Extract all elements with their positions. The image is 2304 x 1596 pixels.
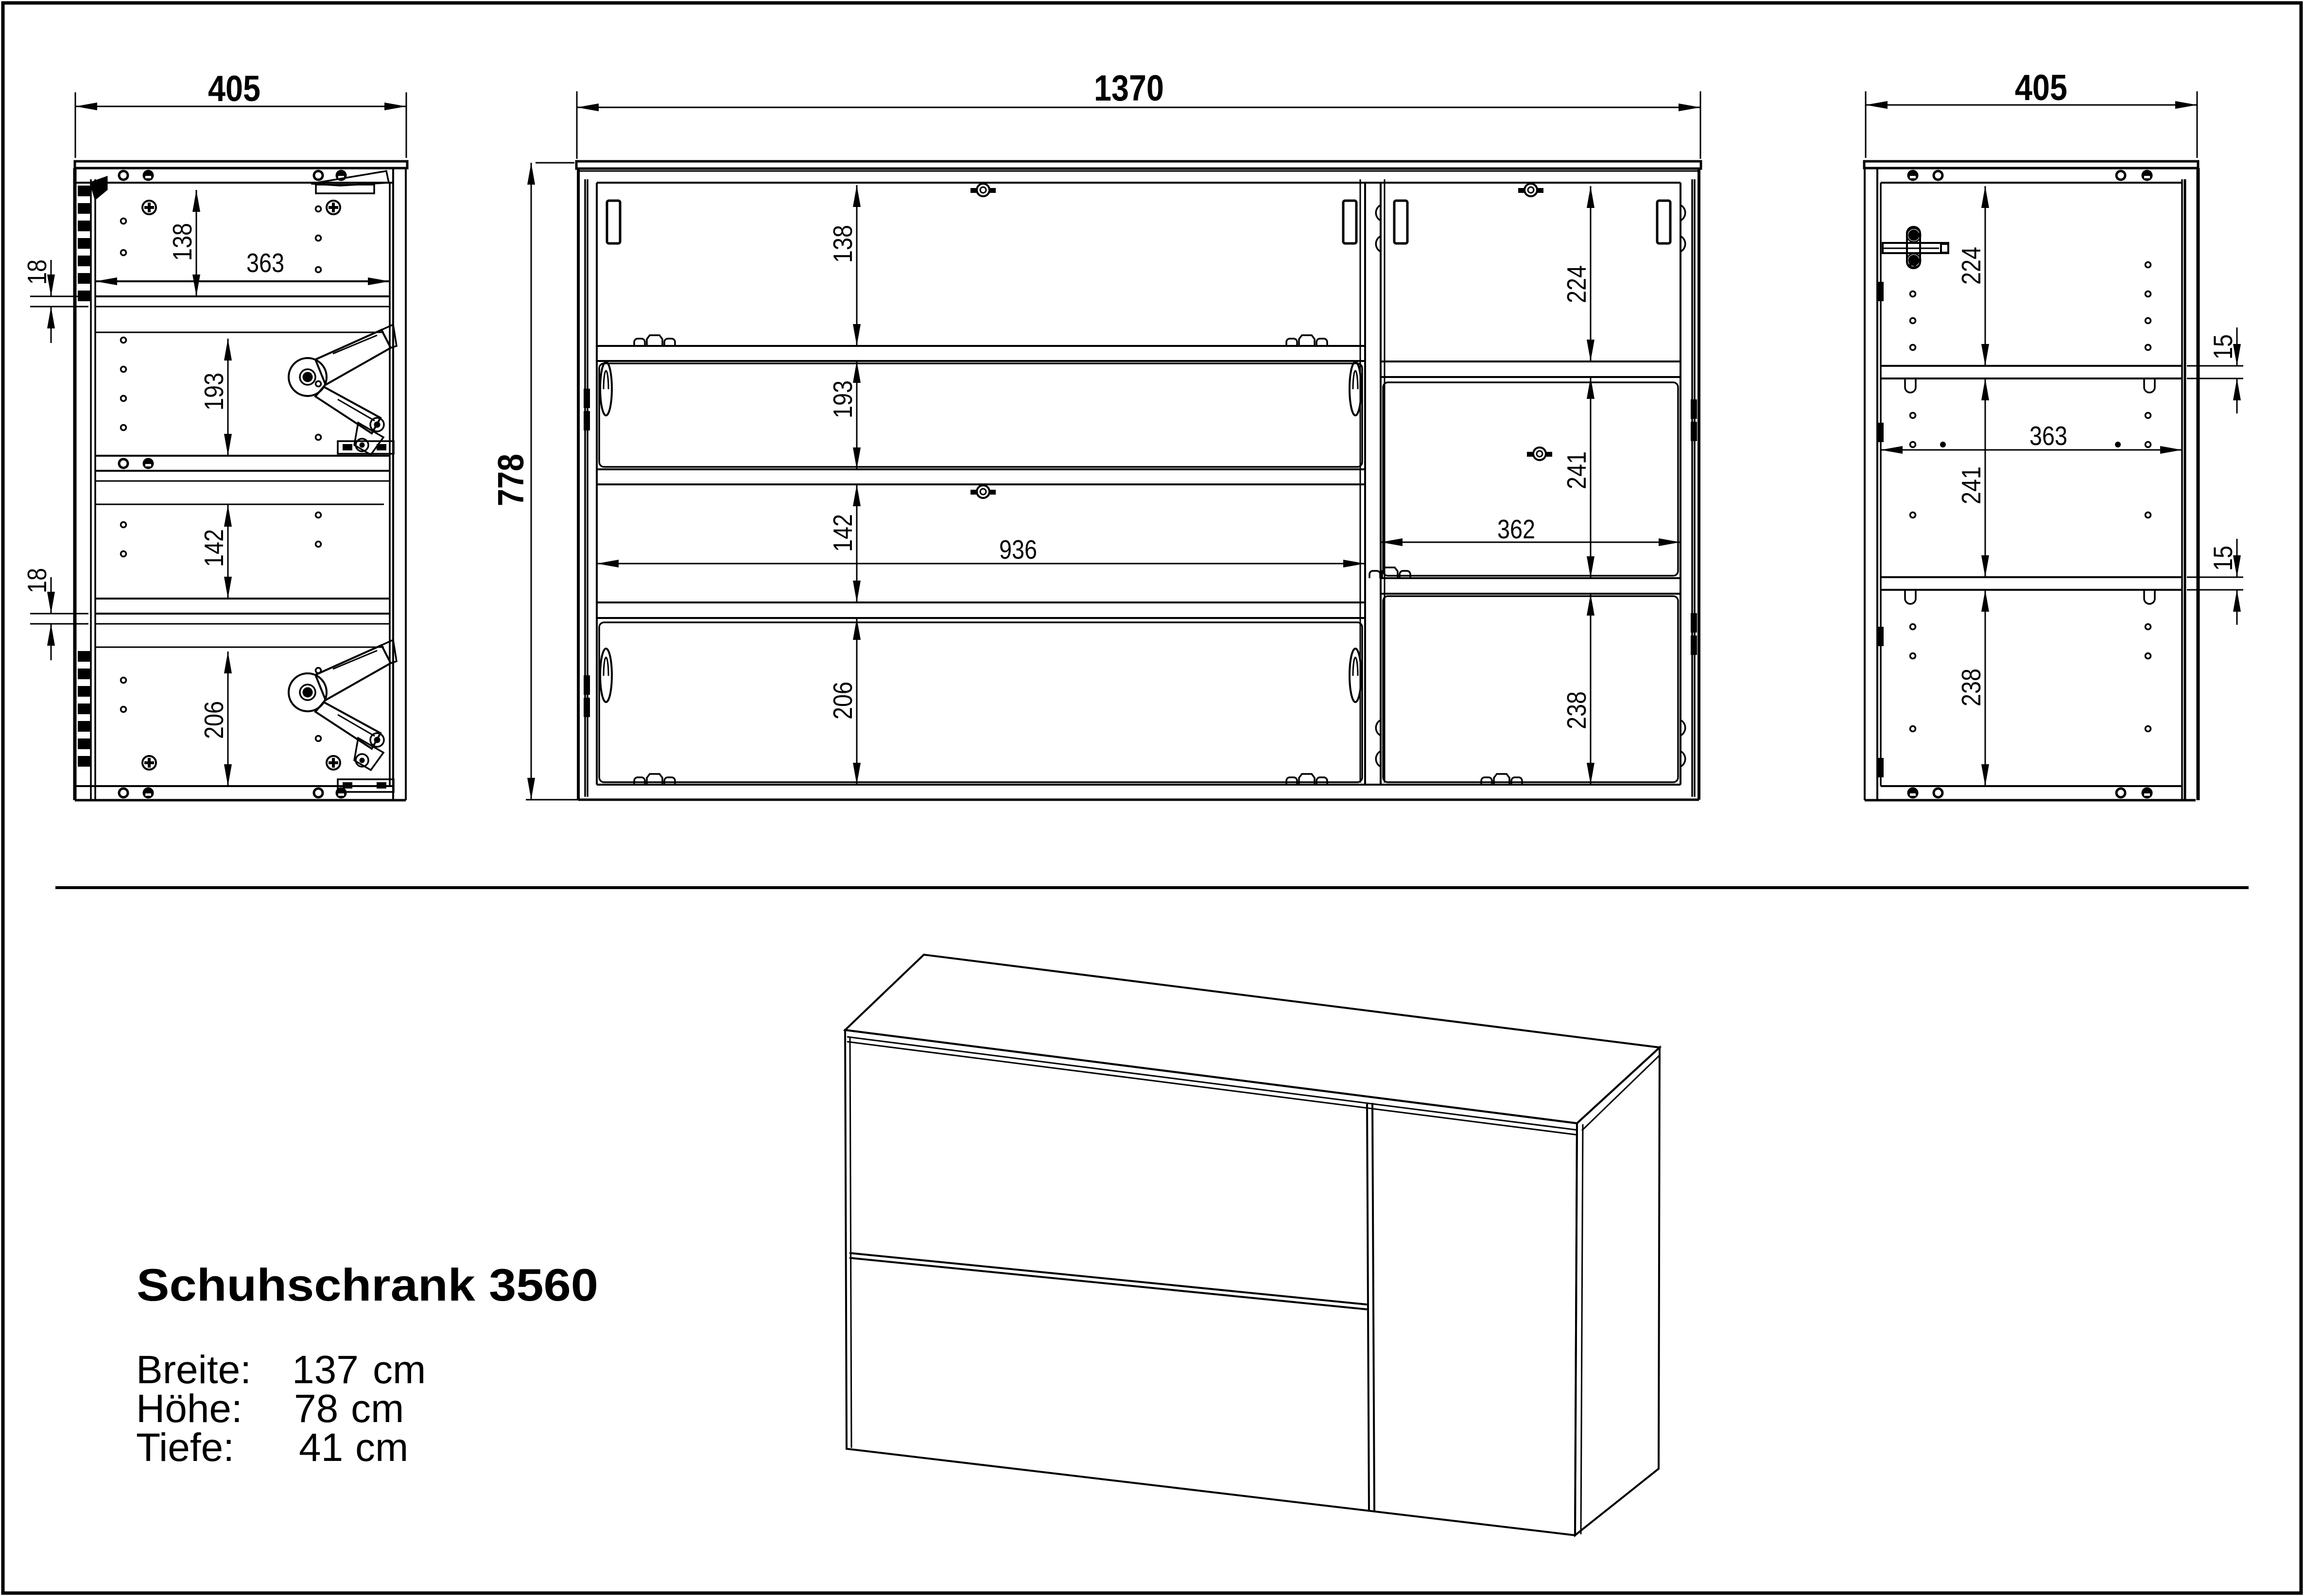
- svg-text:936: 936: [999, 534, 1037, 565]
- svg-text:142: 142: [199, 529, 229, 567]
- svg-text:241: 241: [1956, 466, 1986, 504]
- svg-text:138: 138: [167, 223, 197, 261]
- svg-text:363: 363: [246, 248, 284, 278]
- svg-text:137: 137: [292, 1348, 359, 1392]
- svg-text:238: 238: [1956, 669, 1986, 706]
- svg-text:cm: cm: [351, 1387, 404, 1431]
- svg-text:778: 778: [490, 454, 531, 506]
- svg-text:18: 18: [22, 568, 52, 593]
- svg-text:41: 41: [299, 1425, 343, 1470]
- svg-text:206: 206: [199, 701, 229, 739]
- svg-text:cm: cm: [373, 1348, 426, 1392]
- svg-text:Breite:: Breite:: [136, 1348, 251, 1392]
- svg-text:206: 206: [828, 682, 858, 720]
- svg-text:238: 238: [1561, 691, 1592, 729]
- svg-text:241: 241: [1561, 451, 1592, 489]
- svg-text:363: 363: [2029, 421, 2067, 451]
- svg-text:Höhe:: Höhe:: [136, 1387, 243, 1431]
- svg-text:193: 193: [199, 373, 229, 411]
- svg-text:405: 405: [208, 68, 260, 109]
- svg-text:362: 362: [1497, 514, 1535, 544]
- svg-text:15: 15: [2208, 334, 2238, 360]
- svg-text:1370: 1370: [1094, 68, 1164, 108]
- svg-text:cm: cm: [355, 1425, 408, 1470]
- svg-text:193: 193: [828, 380, 858, 418]
- svg-text:138: 138: [828, 225, 858, 263]
- svg-text:78: 78: [294, 1387, 338, 1431]
- svg-text:224: 224: [1561, 265, 1592, 303]
- svg-text:18: 18: [22, 259, 52, 285]
- svg-text:Tiefe:: Tiefe:: [136, 1425, 234, 1470]
- svg-text:142: 142: [828, 514, 858, 552]
- svg-text:224: 224: [1956, 247, 1986, 285]
- svg-text:15: 15: [2208, 546, 2238, 571]
- svg-text:Schuhschrank 3560: Schuhschrank 3560: [137, 1259, 598, 1310]
- svg-text:405: 405: [2015, 67, 2067, 108]
